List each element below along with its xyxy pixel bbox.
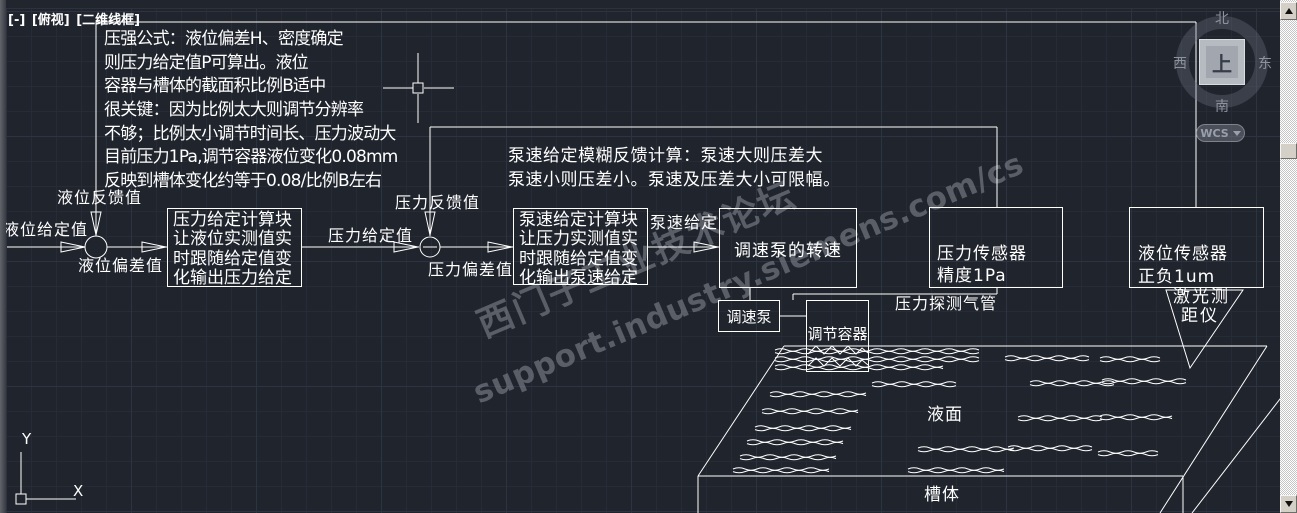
- wave-line: [1008, 448, 1092, 450]
- viewcube-top-face[interactable]: 上: [1199, 39, 1245, 85]
- tank-outline: [698, 346, 1297, 513]
- scrollbar-thumb[interactable]: [1280, 143, 1297, 159]
- wave-line: [740, 455, 836, 457]
- wave-line: [1100, 359, 1160, 361]
- wave-line: [770, 394, 866, 396]
- wave-line: [762, 409, 858, 411]
- block-pressure-sensor: 压力传感器 精度1Pa: [929, 207, 1063, 288]
- block-text-line: 调节容器: [807, 323, 868, 344]
- wave-line: [1100, 417, 1172, 419]
- wave-line: [872, 382, 956, 384]
- block-pump-speed-calc: 泵速给定计算块 让压力实测值实 时跟随给定值变 化输出泵速给定: [513, 208, 648, 285]
- block-text-line: 泵速给定计算块: [519, 211, 647, 230]
- wave-line: [1098, 453, 1158, 455]
- wave-line: [747, 442, 843, 444]
- label-pressure-pipe: 压力探测气管: [895, 295, 997, 313]
- wave-line: [755, 428, 851, 430]
- wave-line: [1100, 357, 1160, 359]
- note-line: 很关键：因为比例太大则调节分辨率: [104, 95, 363, 118]
- note-line: 则压力给定值P可算出。液位: [104, 48, 308, 71]
- scrollbar-down-button[interactable]: [1280, 495, 1297, 513]
- block-text-line: 调速泵的转速: [734, 236, 842, 261]
- wave-line: [908, 468, 1004, 470]
- wcs-dropdown[interactable]: WCS: [1196, 124, 1245, 142]
- top-edge-strip: [0, 0, 1280, 9]
- block-text-line: 让压力实测值实: [519, 230, 647, 249]
- note-line: 反映到槽体变化约等于0.08/比例B左右: [104, 166, 381, 189]
- block-text-line: 精度1Pa: [937, 261, 1007, 286]
- ucs-x-label: X: [73, 482, 83, 500]
- wave-line: [918, 449, 1014, 451]
- wave-line: [733, 470, 829, 472]
- wave-line: [733, 468, 829, 470]
- block-text-line: 化输出泵速给定: [519, 269, 647, 288]
- label-pump-speed-setpoint: 泵速给定: [650, 214, 718, 232]
- block-text-line: 压力给定计算块: [173, 211, 301, 230]
- block-container: 调节容器: [806, 300, 869, 372]
- block-pressure-setpoint-calc: 压力给定计算块 让液位实测值实 时跟随给定值变 化输出压力给定: [167, 208, 302, 287]
- chevron-down-icon: [1233, 131, 1241, 136]
- wave-line: [1018, 416, 1102, 418]
- wave-line: [1005, 356, 1089, 358]
- ucs-icon: [16, 452, 76, 504]
- pump-note-line: 泵速给定模糊反馈计算：泵速大则压差大: [508, 141, 823, 164]
- block-text-line: 时跟随给定值变: [519, 250, 647, 269]
- wave-line: [1098, 451, 1158, 453]
- wave-line: [1030, 383, 1114, 385]
- cad-drawing-canvas[interactable]: 西门子工业技术论坛 support.industry.siemens.com/c…: [0, 0, 1297, 513]
- viewport-controls[interactable]: [-] [俯视] [二维线框]: [8, 9, 142, 28]
- wave-line: [1008, 446, 1092, 448]
- viewcube-top-face-label[interactable]: 上: [1206, 46, 1238, 78]
- block-text-line: 正负1um: [1138, 262, 1215, 287]
- wave-line: [1005, 358, 1089, 360]
- label-pressure-error: 压力偏差值: [428, 261, 513, 279]
- wave-line: [1018, 418, 1102, 420]
- wave-line: [908, 470, 1004, 472]
- block-level-sensor: 液位传感器 正负1um: [1129, 207, 1264, 288]
- label-pressure-setpoint: 压力给定值: [328, 227, 413, 245]
- crosshair-cursor: [383, 53, 454, 123]
- scrollbar-up-button[interactable]: [1280, 2, 1297, 20]
- ucs-y-label: Y: [22, 430, 31, 448]
- block-text-line: 液位传感器: [1138, 239, 1228, 264]
- wave-line: [770, 392, 866, 394]
- viewport-collapse-control[interactable]: [-]: [8, 13, 25, 28]
- summing-junction-level: [85, 236, 107, 258]
- wave-line: [762, 411, 858, 413]
- note-line: 不够；比例太小调节时间长、压力波动大: [104, 119, 396, 142]
- viewcube-south[interactable]: 南: [1207, 96, 1237, 116]
- block-text-line: 化输出压力给定: [173, 269, 301, 288]
- label-laser-2: 距仪: [1181, 307, 1219, 326]
- wave-line: [872, 384, 956, 386]
- pump-note-line: 泵速小则压差小。泵速及压差大小可限幅。: [508, 165, 841, 188]
- left-edge-strip: [0, 0, 6, 513]
- viewcube-north[interactable]: 北: [1207, 8, 1237, 28]
- wave-line: [755, 426, 851, 428]
- viewcube-west[interactable]: 西: [1165, 53, 1195, 73]
- label-pressure-feedback: 压力反馈值: [395, 194, 480, 212]
- viewport-view-control[interactable]: [俯视]: [32, 13, 70, 28]
- wave-line: [1100, 415, 1172, 417]
- label-tank: 槽体: [924, 486, 960, 505]
- wave-line: [747, 440, 843, 442]
- wcs-label: WCS: [1200, 127, 1228, 140]
- label-laser-1: 激光测: [1173, 288, 1230, 307]
- label-liquid-surface: 液面: [927, 406, 963, 425]
- viewport-visual-style-control[interactable]: [二维线框]: [76, 13, 140, 28]
- label-level-error: 液位偏差值: [78, 257, 163, 275]
- arrow-up-icon: [1285, 8, 1293, 14]
- vertical-scrollbar[interactable]: [1280, 0, 1297, 513]
- label-level-setpoint: 液位给定值: [3, 221, 88, 239]
- block-pump: 调速泵: [718, 300, 780, 332]
- block-text-line: 让液位实测值实: [173, 230, 301, 249]
- note-line: 目前压力1Pa,调节容器液位变化0.08mm: [104, 142, 398, 165]
- summing-junction-pressure: [420, 237, 440, 257]
- wave-line: [740, 457, 836, 459]
- viewcube-east[interactable]: 东: [1250, 53, 1280, 73]
- wave-line: [1030, 381, 1114, 383]
- wave-line: [918, 447, 1014, 449]
- block-text-line: 时跟随给定值变: [173, 250, 301, 269]
- label-level-feedback: 液位反馈值: [57, 189, 142, 207]
- wave-line: [1102, 379, 1186, 381]
- block-text-line: 调速泵: [726, 306, 771, 327]
- note-line: 容器与槽体的截面积比例B适中: [104, 71, 325, 94]
- arrow-down-icon: [1285, 501, 1293, 507]
- block-pump-speed: 调速泵的转速: [719, 208, 857, 288]
- wave-line: [1102, 381, 1186, 383]
